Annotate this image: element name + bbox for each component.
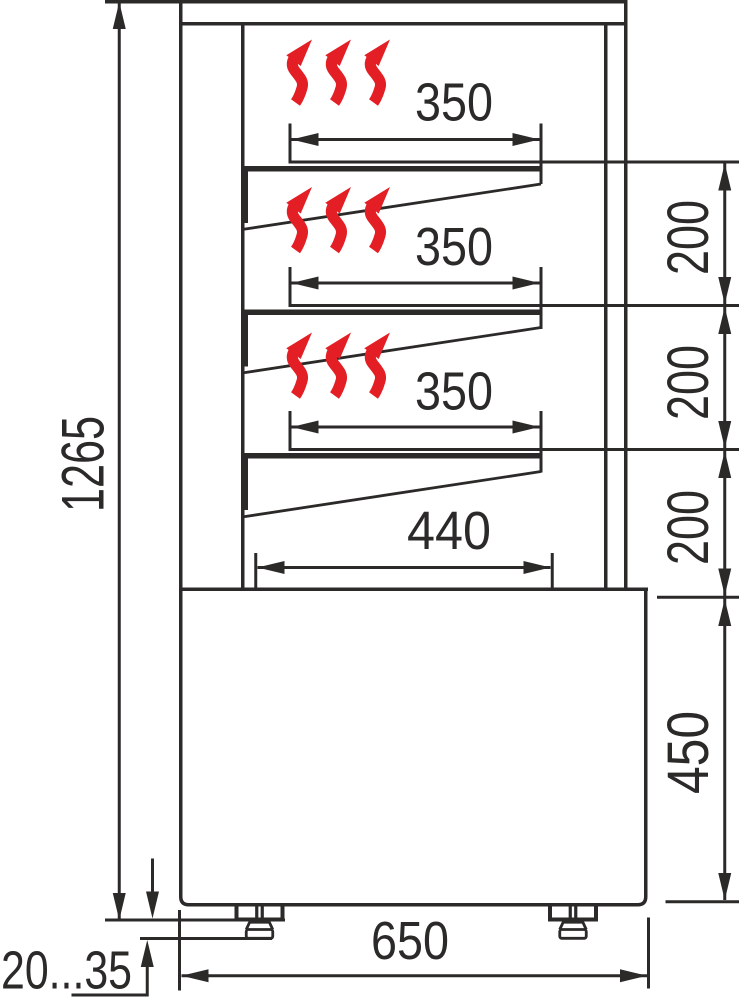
svg-text:200: 200	[656, 490, 721, 565]
svg-text:350: 350	[415, 362, 493, 422]
svg-text:20...35: 20...35	[1, 941, 132, 1000]
svg-text:650: 650	[371, 911, 449, 971]
svg-text:200: 200	[656, 345, 721, 420]
svg-text:1265: 1265	[50, 416, 117, 512]
svg-text:440: 440	[407, 501, 491, 561]
svg-text:200: 200	[656, 200, 721, 275]
svg-text:450: 450	[656, 711, 721, 794]
svg-text:350: 350	[415, 73, 493, 133]
svg-text:350: 350	[415, 217, 493, 277]
